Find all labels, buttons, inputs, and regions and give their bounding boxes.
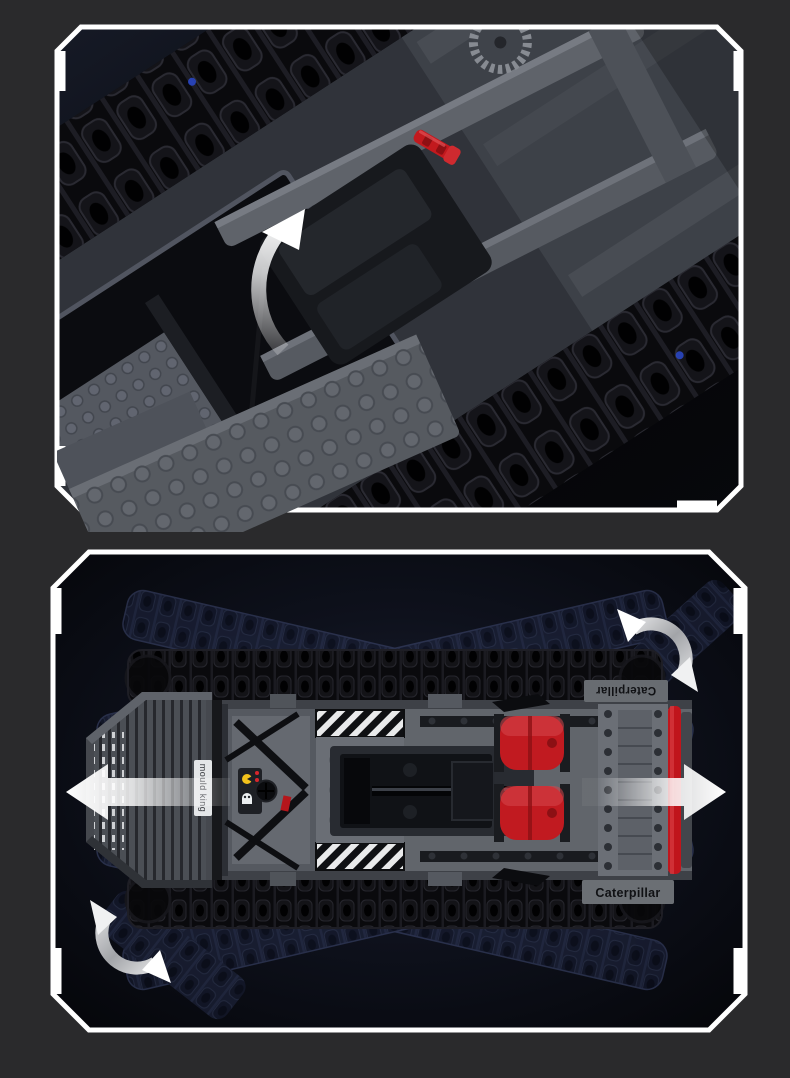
fuel-tank-top	[494, 714, 570, 772]
caterpillar-label-top: Caterpillar	[596, 684, 656, 696]
hazard-plate-bottom	[316, 843, 404, 870]
ghost-icon	[242, 793, 252, 804]
caterpillar-plate-top: Caterpillar	[584, 680, 668, 702]
hazard-plate-top	[316, 710, 404, 737]
fuel-tank-bottom	[494, 784, 570, 842]
caterpillar-plate-bottom: Caterpillar	[582, 880, 674, 904]
bottom-panel: mould king Caterpillar Cate	[52, 552, 748, 1030]
caterpillar-label-bottom: Caterpillar	[595, 886, 660, 900]
product-showcase: mould king Caterpillar Cate	[0, 0, 790, 1078]
